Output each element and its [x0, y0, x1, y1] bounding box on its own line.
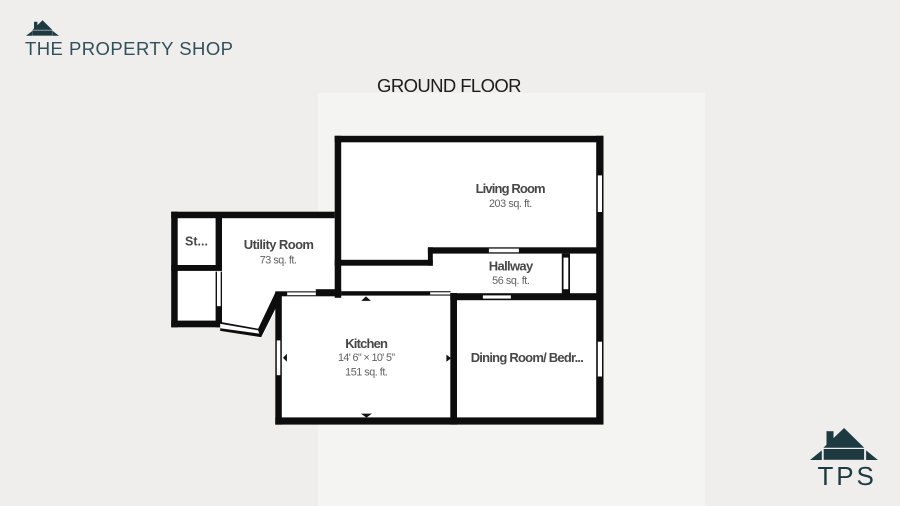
svg-text:Kitchen: Kitchen: [345, 336, 388, 351]
svg-text:56 sq. ft.: 56 sq. ft.: [492, 275, 530, 287]
svg-text:14' 6" × 10' 5": 14' 6" × 10' 5": [338, 352, 395, 364]
svg-text:St...: St...: [185, 235, 208, 249]
svg-text:Living Room: Living Room: [476, 181, 546, 196]
svg-text:Dining Room/ Bedr...: Dining Room/ Bedr...: [471, 350, 584, 365]
svg-text:73 sq. ft.: 73 sq. ft.: [260, 254, 297, 266]
svg-text:Utility Room: Utility Room: [244, 237, 314, 252]
svg-text:203 sq. ft.: 203 sq. ft.: [489, 198, 532, 210]
svg-text:Hallway: Hallway: [489, 258, 534, 273]
svg-text:151 sq. ft.: 151 sq. ft.: [345, 367, 388, 379]
